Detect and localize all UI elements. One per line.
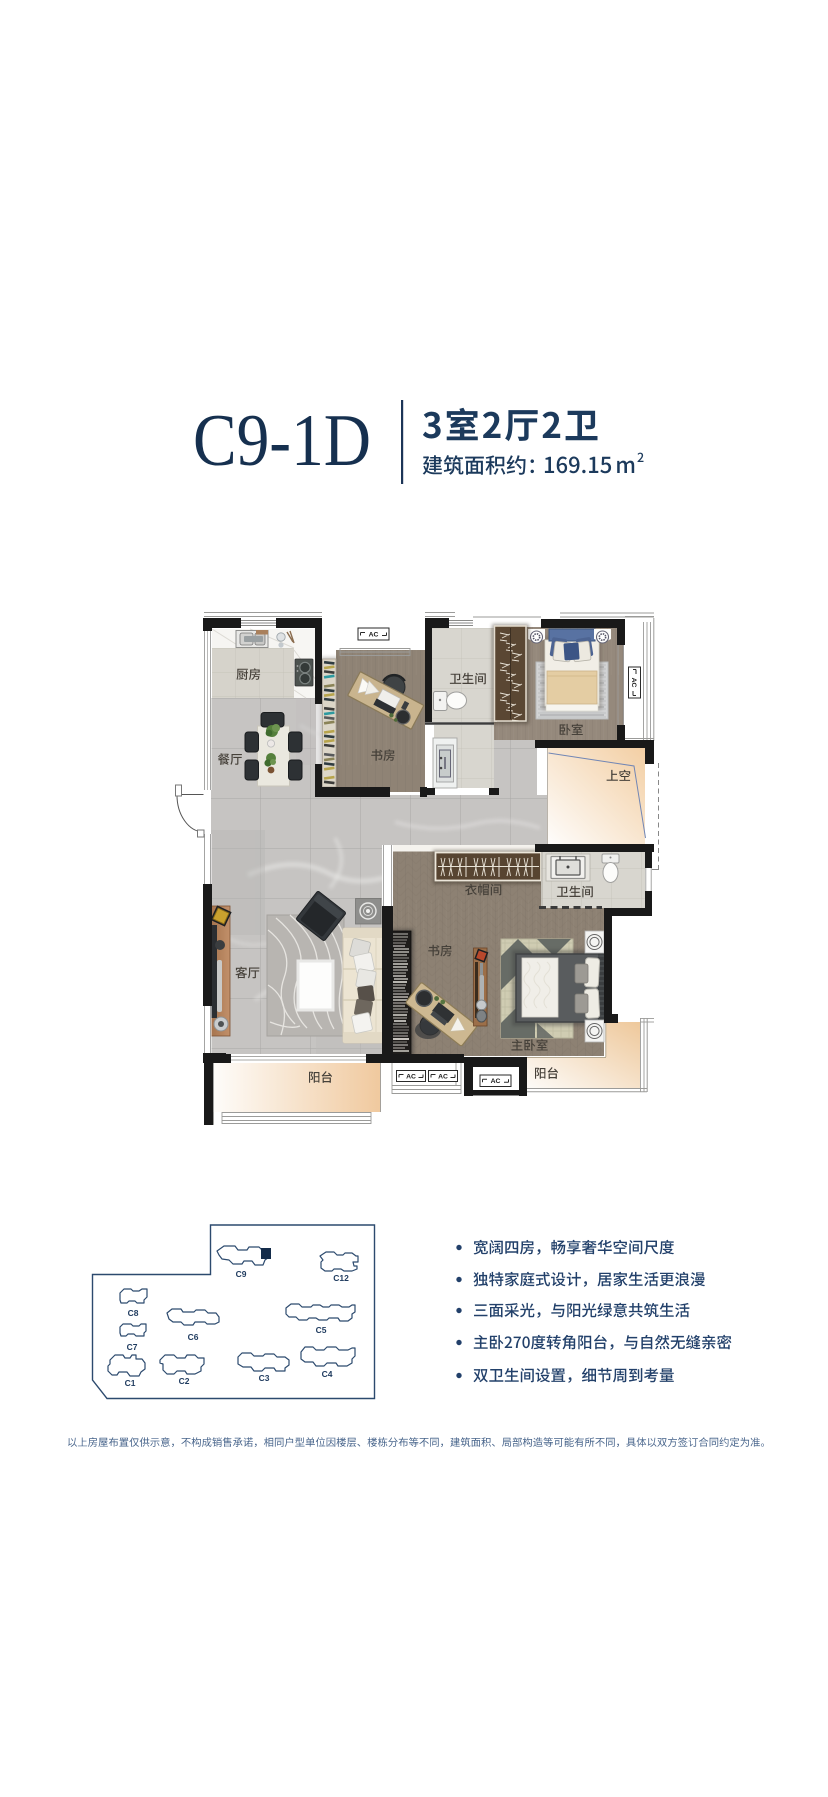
svg-text:C9: C9 (236, 1269, 247, 1279)
svg-text:AC: AC (630, 678, 637, 688)
svg-text:C6: C6 (188, 1332, 199, 1342)
svg-text:C2: C2 (179, 1376, 190, 1386)
svg-text:AC: AC (491, 1078, 501, 1085)
svg-text:C1: C1 (125, 1378, 136, 1388)
svg-text:C5: C5 (316, 1325, 327, 1335)
svg-text:AC: AC (369, 631, 379, 638)
svg-text:C9-1D: C9-1D (193, 400, 371, 482)
svg-text:C8: C8 (128, 1308, 139, 1318)
svg-text:C4: C4 (322, 1369, 333, 1379)
svg-text:AC: AC (406, 1073, 416, 1080)
svg-text:AC: AC (438, 1073, 448, 1080)
svg-text:C12: C12 (333, 1273, 349, 1283)
svg-text:C7: C7 (127, 1342, 138, 1352)
svg-text:C3: C3 (259, 1373, 270, 1383)
